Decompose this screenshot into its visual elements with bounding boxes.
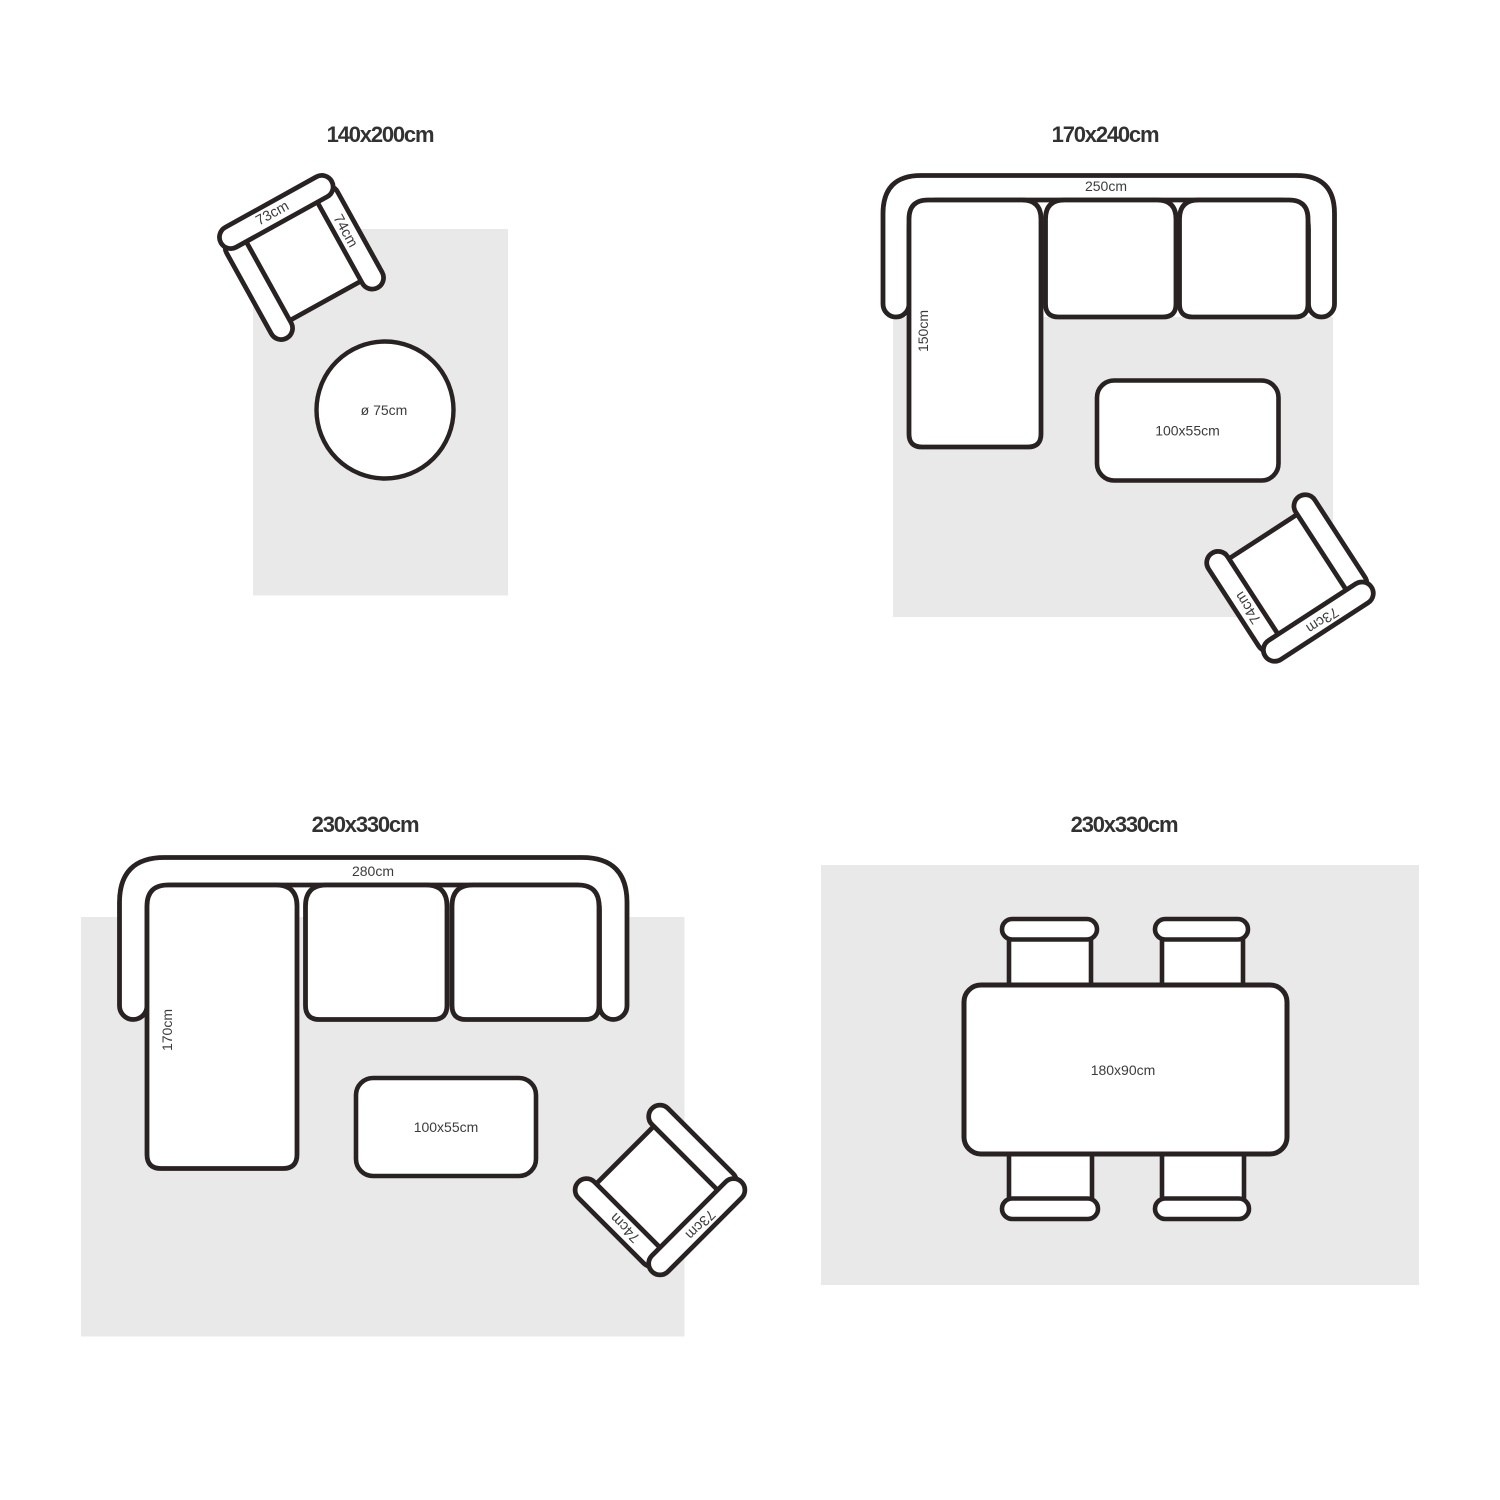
svg-text:150cm: 150cm <box>915 310 931 352</box>
svg-text:250cm: 250cm <box>1085 178 1127 194</box>
svg-text:180x90cm: 180x90cm <box>1091 1062 1156 1078</box>
svg-text:170x240cm: 170x240cm <box>1052 122 1159 147</box>
svg-text:230x330cm: 230x330cm <box>312 812 419 837</box>
svg-text:140x200cm: 140x200cm <box>327 122 434 147</box>
svg-text:280cm: 280cm <box>352 863 394 879</box>
svg-text:ø 75cm: ø 75cm <box>361 402 408 418</box>
svg-text:170cm: 170cm <box>159 1009 175 1051</box>
svg-text:100x55cm: 100x55cm <box>414 1119 479 1135</box>
svg-text:230x330cm: 230x330cm <box>1071 812 1178 837</box>
svg-text:100x55cm: 100x55cm <box>1155 423 1220 439</box>
